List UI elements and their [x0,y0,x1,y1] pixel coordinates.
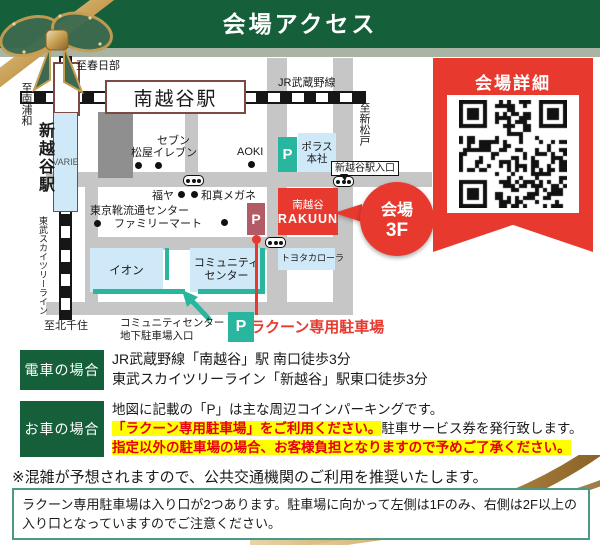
qr-code [459,100,567,208]
shoe-center-label: 東京靴流通センター [90,205,189,217]
train-line-2: 東武スカイツリーライン「新越谷」駅東口徒歩3分 [112,369,428,389]
train-line-1: JR武蔵野線「南越谷」駅 南口徒歩3分 [112,349,428,369]
rakuun-building: 南越谷 RAKUUN [278,188,338,235]
tobu-line-label: 東武スカイツリーライン [37,216,50,315]
seven-eleven-label-2: イレブン [153,147,197,159]
access-map: VARIE 南越谷駅 至春日部 至南浦和 JR武蔵野線 至新松戸 新越谷駅 東武… [28,58,432,346]
car-section-text: 地図に記載の「P」は主な周辺コインパーキングです。「ラクーン専用駐車場」をご利用… [112,400,584,457]
car-section-label-box: お車の場合 [20,401,104,457]
car-text-seg2-highlight: 「ラクーン専用駐車場」 [112,421,260,436]
flyer-page: 会場アクセス VARIE 南越谷駅 [0,0,600,545]
community-center-label-2: センター [194,270,259,283]
familymart-label: ファミリーマート [114,218,202,230]
station-building [98,112,133,178]
varie-label: VARIE [52,156,78,168]
parking-info-box: ラクーン専用駐車場は入り口が2つあります。駐車場に向かって左側は1Fのみ、右側は… [12,488,590,540]
ccenter-parking-label-1: コミュニティセンター [120,317,224,330]
rakuun-parking-box: P [247,203,265,235]
rakuun-parking-label: ラクーン専用駐車場 [250,316,384,337]
venue-detail-title: 会場詳細 [433,69,593,94]
rakuun-label-1: 南越谷 [292,197,324,212]
shoe-center-marker-icon [94,220,101,227]
venue-balloon-label-1: 会場 [381,196,413,220]
washin-marker-icon [191,191,198,198]
venue-balloon-label-2: 3F [386,220,408,242]
train-section-text: JR武蔵野線「南越谷」駅 南口徒歩3分 東武スカイツリーライン「新越谷」駅東口徒… [112,349,428,389]
venue-detail-banner: 会場詳細 [433,58,593,252]
fukuya-label: 福ヤ [152,190,174,202]
aoki-marker-icon [248,161,255,168]
car-text-seg4: 駐車サービス券を発行致します。 [381,421,582,436]
ccenter-parking-label-2: 地下駐車場入口 [120,330,224,343]
rakuun-label-2: RAKUUN [278,212,338,226]
ribbon-bow-icon [0,0,126,98]
aeon-building: イオン [90,248,163,292]
to-kita-senju-label: 至北千住 [44,320,88,332]
car-text-seg1: 地図に記載の「P」は主な周辺コインパーキングです。 [112,402,443,417]
jr-line-label: JR武蔵野線 [278,77,335,89]
aeon-label: イオン [109,262,144,278]
matsuya-marker-icon [135,162,142,169]
polus-label-1: ポラス [301,141,332,153]
venue-balloon-tail [334,204,362,222]
to-shin-matsudo-label: 至新松戸 [356,102,372,146]
venue-balloon: 会場 3F [360,182,434,256]
train-section-label-box: 電車の場合 [20,350,104,390]
aoki-label: AOKI [237,146,263,158]
parking-leader-line [255,242,258,315]
shin-koshigaya-station-label: 新越谷駅 [32,122,56,194]
ccenter-parking-label: コミュニティセンター 地下駐車場入口 [120,317,224,343]
car-text-seg5-highlight: 指定以外の駐車場の場合、お客様負担となりますので予めご了承ください。 [112,440,571,455]
seven-eleven-label-1: セブン [157,135,190,147]
seven-eleven-marker-icon [155,162,162,169]
minami-koshigaya-station-box: 南越谷駅 [105,80,246,114]
familymart-marker-icon [221,219,228,226]
varie-building: VARIE [53,112,78,212]
polus-label-2: 本社 [301,153,332,165]
ccenter-parking-box: P [228,312,254,342]
route-line-bottom-left [93,289,185,294]
route-line-right [260,248,265,294]
minami-koshigaya-station-label: 南越谷駅 [133,84,217,111]
qr-frame [447,95,579,213]
toyota-building: トヨタカローラ [278,248,335,270]
matsuya-label: 松屋 [131,147,153,159]
traffic-light-icon [265,237,286,248]
congestion-note: ※混雑が予想されますので、公共交通機関のご利用を推奨いたします。 [12,466,487,487]
car-text-seg3-highlight: をご利用ください。 [260,421,382,436]
community-center-label-1: コミュニティ [194,257,259,270]
toyota-label: トヨタカローラ [278,248,344,264]
jr-track-east [242,91,366,104]
fukuya-marker-icon [178,191,185,198]
traffic-light-icon [183,175,204,186]
car-section-label: お車の場合 [25,419,100,439]
route-line-gap-segment [165,248,169,280]
coin-parking-north: P [278,137,297,172]
station-entrance-callout-tail [340,174,348,181]
community-center-building: コミュニティ センター [190,248,263,292]
train-section-label: 電車の場合 [25,360,100,380]
washin-label: 和真メガネ [201,190,256,202]
